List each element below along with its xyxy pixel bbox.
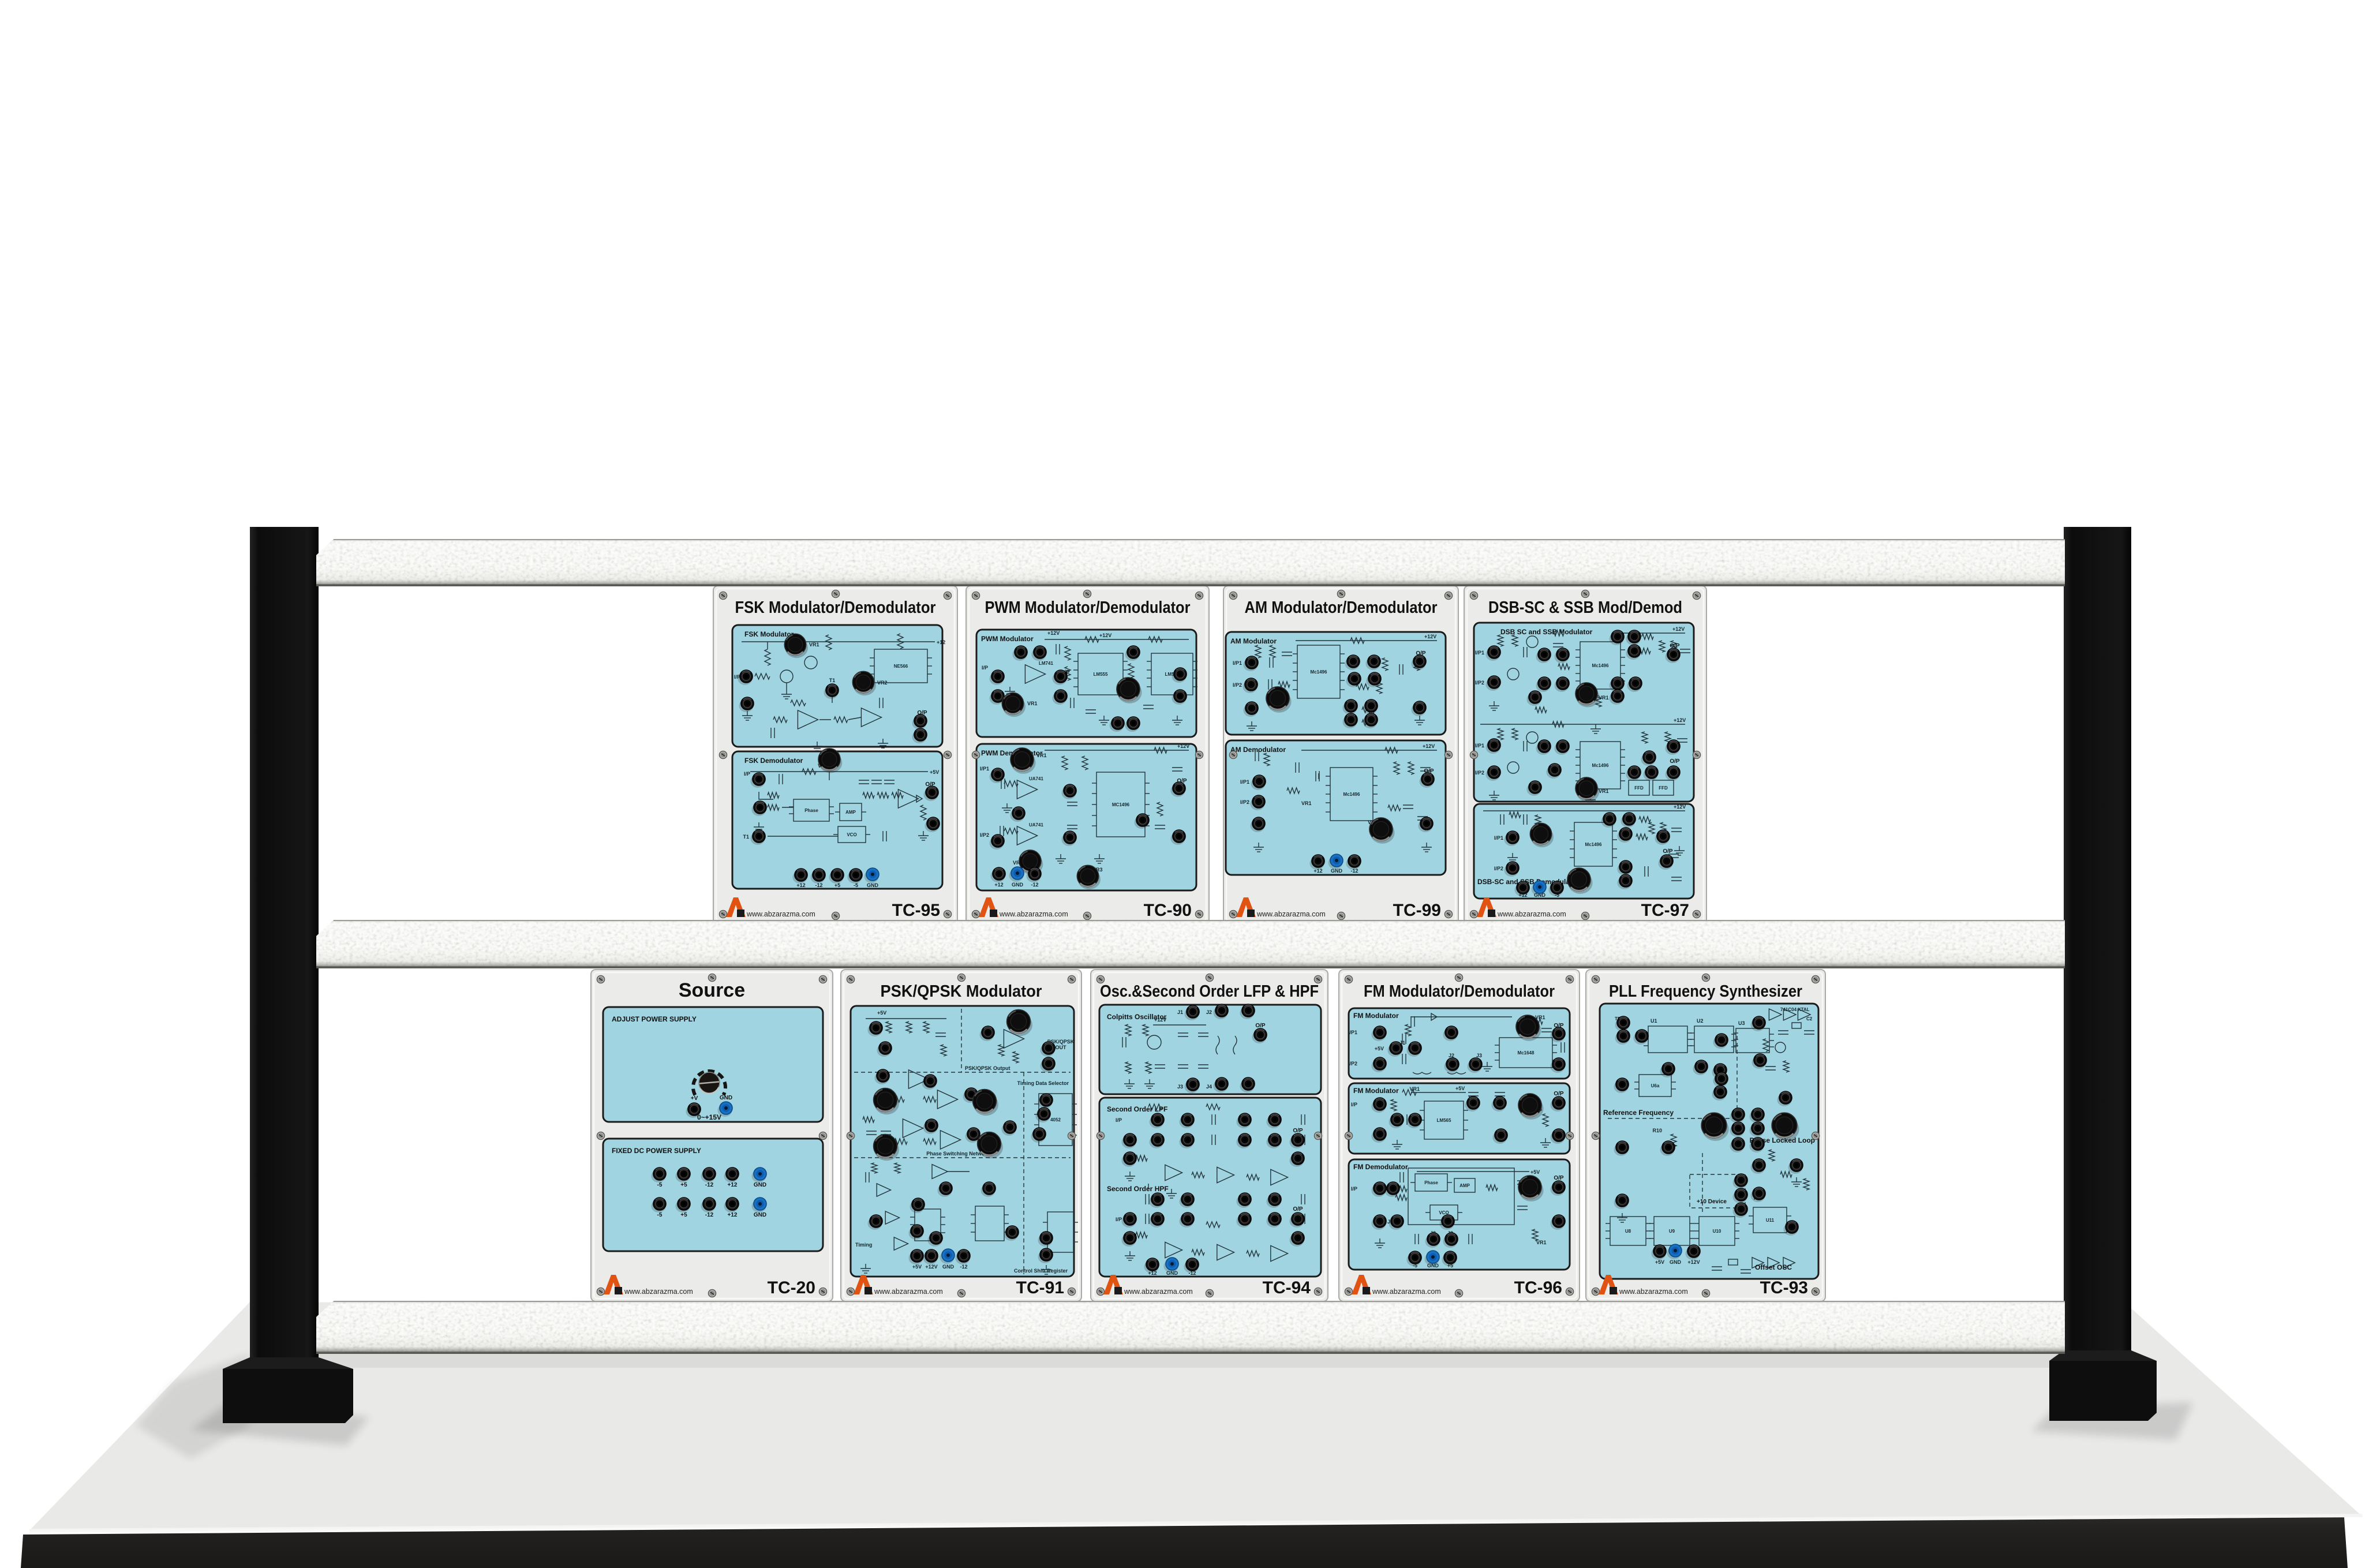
svg-text:+12V: +12V [1674,804,1686,810]
svg-text:Mc1496: Mc1496 [1592,663,1609,668]
svg-text:VR1: VR1 [809,642,819,648]
svg-text:I/P2: I/P2 [1475,680,1484,686]
svg-text:AMP: AMP [1459,1183,1470,1188]
svg-text:Offset OSC: Offset OSC [1755,1263,1792,1271]
svg-text:+12V: +12V [1099,633,1111,638]
svg-text:U8: U8 [1625,1229,1631,1234]
svg-text:TC-99: TC-99 [1393,901,1441,920]
svg-text:Reference Frequency: Reference Frequency [1603,1109,1674,1117]
svg-text:www.abzarazma.com: www.abzarazma.com [999,910,1068,918]
svg-text:TC-93: TC-93 [1760,1278,1808,1297]
svg-text:I/P1: I/P1 [1233,660,1242,666]
svg-text:+12V: +12V [1674,717,1686,723]
svg-text:Timing: Timing [855,1242,872,1248]
svg-text:TC-94: TC-94 [1263,1278,1311,1297]
svg-text:www.abzarazma.com: www.abzarazma.com [624,1288,693,1296]
svg-text:I/P: I/P [744,771,750,777]
svg-text:Timing Data Selector: Timing Data Selector [1017,1080,1069,1086]
svg-text:VR2: VR2 [877,680,888,686]
svg-text:LM555: LM555 [1094,672,1108,677]
svg-text:I/P: I/P [982,665,988,671]
svg-text:TC-96: TC-96 [1514,1278,1562,1297]
svg-text:+5V: +5V [1530,1169,1540,1175]
svg-text:I/P1: I/P1 [1475,650,1484,656]
svg-text:AM Modulator/Demodulator: AM Modulator/Demodulator [1245,598,1438,617]
svg-text:+5V: +5V [930,769,939,775]
svg-text:+12V: +12V [1047,630,1060,636]
svg-text:U1: U1 [1651,1018,1657,1024]
svg-text:Second Order LPF: Second Order LPF [1107,1105,1167,1113]
svg-text:I/P1: I/P1 [1348,1030,1357,1035]
svg-text:UA741: UA741 [1029,822,1043,828]
svg-text:O/P: O/P [1663,848,1673,855]
svg-text:J3: J3 [1177,1084,1183,1090]
svg-text:Mc1648: Mc1648 [1518,1050,1535,1056]
svg-text:VR1: VR1 [1027,701,1038,706]
svg-text:U3: U3 [1738,1020,1745,1026]
svg-text:Phase: Phase [804,808,818,813]
svg-text:PSK/QPSK Output: PSK/QPSK Output [965,1065,1011,1071]
svg-text:Mc1496: Mc1496 [1585,842,1602,847]
svg-text:I/P2: I/P2 [980,832,989,838]
svg-text:PLL Frequency Synthesizer: PLL Frequency Synthesizer [1609,982,1802,1001]
svg-text:+5V: +5V [912,1264,922,1270]
svg-text:VR1: VR1 [1599,788,1609,794]
svg-text:I/P2: I/P2 [1240,799,1249,805]
svg-text:www.abzarazma.com: www.abzarazma.com [746,910,815,918]
svg-text:C2: C2 [1806,1016,1813,1021]
svg-text:I/P2: I/P2 [1348,1061,1357,1066]
svg-text:U11: U11 [1766,1218,1775,1223]
svg-text:-12: -12 [705,1212,714,1218]
svg-text:+5V: +5V [1655,1259,1664,1265]
svg-text:DSB-SC & SSB Mod/Demod: DSB-SC & SSB Mod/Demod [1488,598,1682,617]
svg-text:FFD: FFD [1634,785,1644,791]
svg-text:741C04 XTAL: 741C04 XTAL [1780,1007,1810,1012]
svg-text:Source: Source [679,979,745,1001]
svg-text:+12V: +12V [1687,1259,1700,1265]
svg-text:J1: J1 [1177,1009,1183,1015]
svg-text:U6a: U6a [1651,1083,1660,1088]
svg-text:+5V: +5V [1375,1046,1384,1051]
svg-text:TC-20: TC-20 [768,1278,815,1297]
svg-text:Second Order HPF: Second Order HPF [1107,1185,1169,1193]
svg-text:U9: U9 [1669,1229,1675,1234]
svg-text:www.abzarazma.com: www.abzarazma.com [874,1288,943,1296]
svg-text:4052: 4052 [1050,1117,1061,1122]
svg-text:-12: -12 [960,1264,967,1270]
svg-text:FSK Modulator/Demodulator: FSK Modulator/Demodulator [735,598,936,617]
svg-text:GND: GND [754,1212,766,1218]
svg-text:ADJUST POWER SUPPLY: ADJUST POWER SUPPLY [612,1015,697,1023]
svg-text:Phase: Phase [1424,1180,1438,1185]
svg-text:I/P2: I/P2 [1475,770,1484,776]
svg-text:www.abzarazma.com: www.abzarazma.com [1372,1288,1441,1296]
svg-text:FM Modulator: FM Modulator [1353,1087,1399,1095]
svg-text:-5: -5 [657,1182,663,1188]
svg-text:+12V: +12V [1672,626,1685,632]
svg-text:VR1: VR1 [1036,753,1047,758]
svg-text:AM Modulator: AM Modulator [1230,637,1277,645]
svg-text:VR1: VR1 [1536,1240,1547,1245]
svg-text:FSK Modulator: FSK Modulator [744,630,794,638]
svg-text:PWM Modulator/Demodulator: PWM Modulator/Demodulator [985,598,1191,617]
svg-text:I/P1: I/P1 [980,766,989,772]
svg-text:FM Modulator/Demodulator: FM Modulator/Demodulator [1364,982,1555,1001]
svg-text:I/P2: I/P2 [1233,682,1242,688]
svg-text:www.abzarazma.com: www.abzarazma.com [1497,910,1566,918]
svg-text:U2: U2 [1697,1018,1704,1024]
svg-text:GND: GND [754,1182,766,1188]
svg-text:FIXED DC POWER SUPPLY: FIXED DC POWER SUPPLY [612,1147,701,1155]
svg-text:I/P: I/P [1116,1117,1122,1123]
svg-text:PSK/QPSK Modulator: PSK/QPSK Modulator [881,982,1042,1001]
svg-text:+12V: +12V [925,1264,937,1270]
svg-text:J2: J2 [1206,1009,1212,1015]
svg-text:+12: +12 [994,882,1003,888]
svg-text:Mc1496: Mc1496 [1343,792,1360,797]
svg-text:FFD: FFD [1659,785,1668,791]
svg-text:O/P: O/P [1293,1206,1303,1213]
svg-text:VR1: VR1 [1301,800,1312,806]
svg-text:AMP: AMP [845,810,856,815]
svg-text:I/P: I/P [1351,1186,1357,1192]
svg-text:I/P1: I/P1 [1240,779,1249,785]
svg-text:0~+15V: 0~+15V [697,1113,721,1121]
svg-text:R10: R10 [1652,1128,1662,1133]
svg-text:VCO: VCO [847,832,856,837]
svg-text:+10 Device: +10 Device [1697,1199,1727,1205]
svg-text:VR1: VR1 [1599,695,1609,701]
svg-text:Control Shift Register: Control Shift Register [1014,1268,1068,1274]
svg-text:Osc.&Second Order LFP & HPF: Osc.&Second Order LFP & HPF [1100,982,1319,1001]
svg-text:+5: +5 [680,1182,687,1188]
svg-text:T1: T1 [743,834,749,840]
svg-text:-12: -12 [1031,882,1038,888]
svg-text:TC-91: TC-91 [1016,1278,1064,1297]
svg-text:+12: +12 [728,1212,738,1218]
svg-text:FM Modulator: FM Modulator [1353,1012,1399,1020]
svg-text:I/P: I/P [1116,1217,1122,1222]
svg-text:U10: U10 [1713,1229,1721,1234]
svg-text:O/P: O/P [1670,758,1680,765]
svg-text:VR1: VR1 [1409,1086,1420,1092]
svg-text:+12: +12 [728,1182,738,1188]
svg-text:GND: GND [867,882,879,888]
svg-text:I/P1: I/P1 [1494,835,1503,841]
svg-text:www.abzarazma.com: www.abzarazma.com [1256,910,1326,918]
svg-text:-12: -12 [705,1182,714,1188]
svg-text:www.abzarazma.com: www.abzarazma.com [1124,1288,1193,1296]
svg-text:I/P: I/P [1351,1102,1357,1107]
svg-text:-5: -5 [657,1212,663,1218]
svg-text:J4: J4 [1206,1084,1212,1090]
svg-text:GND: GND [1012,882,1024,888]
svg-text:LM741: LM741 [1039,661,1053,666]
svg-text:www.abzarazma.com: www.abzarazma.com [1619,1288,1688,1296]
svg-text:Mc1496: Mc1496 [1311,669,1327,675]
svg-text:+12V: +12V [1423,743,1435,749]
svg-text:GND: GND [720,1095,732,1101]
svg-text:+5V: +5V [1455,1086,1465,1091]
svg-text:I/P2: I/P2 [1494,866,1503,871]
svg-text:UA741: UA741 [1029,776,1043,781]
svg-text:GND: GND [942,1264,955,1270]
svg-text:+12V: +12V [1177,743,1189,749]
svg-text:+5V: +5V [877,1010,886,1016]
svg-text:AM Demodulator: AM Demodulator [1230,746,1286,754]
svg-text:TC-90: TC-90 [1144,901,1192,920]
svg-text:+V: +V [691,1095,698,1102]
svg-text:OUT: OUT [1056,1045,1067,1050]
svg-text:+5: +5 [680,1212,687,1218]
svg-text:+12V: +12V [1424,634,1436,639]
svg-text:TC-95: TC-95 [892,901,940,920]
svg-text:PWM Modulator: PWM Modulator [981,635,1034,643]
svg-text:NE566: NE566 [894,664,908,669]
svg-text:+12: +12 [937,639,945,645]
svg-text:FM Demodulator: FM Demodulator [1353,1163,1408,1171]
svg-text:TC-97: TC-97 [1641,901,1689,920]
svg-text:Mc1496: Mc1496 [1592,763,1609,768]
svg-text:LM565: LM565 [1437,1118,1451,1123]
svg-text:T1: T1 [829,678,836,683]
svg-text:GND: GND [1670,1259,1682,1265]
svg-text:+12V: +12V [1154,1017,1166,1023]
svg-text:FSK Demodulator: FSK Demodulator [744,757,803,765]
svg-text:I/P1: I/P1 [1475,743,1484,749]
svg-text:MC1496: MC1496 [1112,802,1130,807]
